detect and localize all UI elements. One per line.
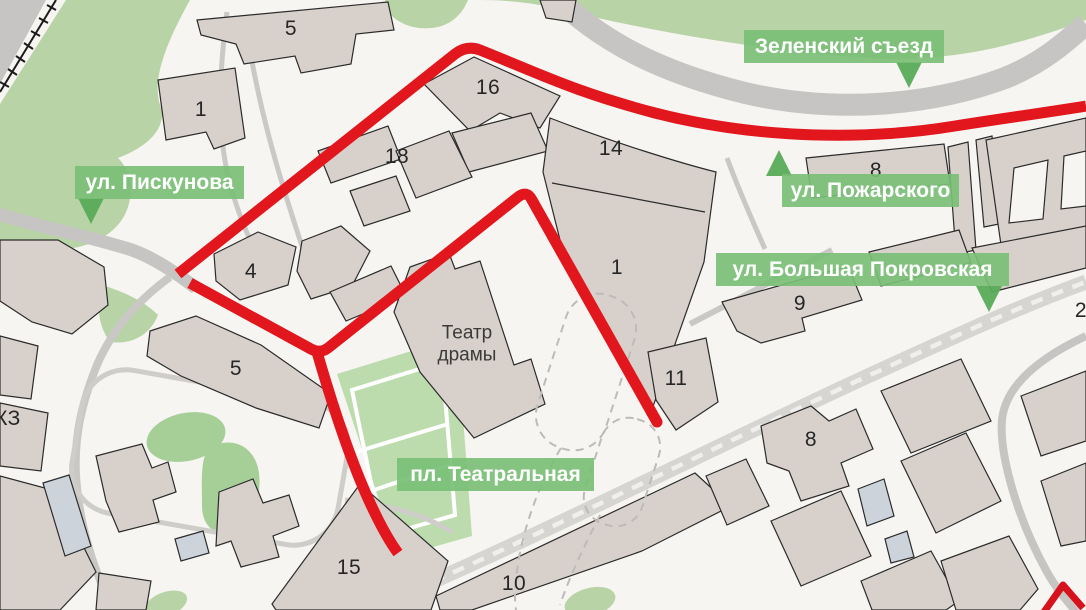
label-pointer-pokrovskaya	[976, 286, 1002, 312]
building-number: 9	[794, 292, 806, 316]
building-number: 18	[385, 145, 409, 169]
label-pointer-zelensky	[896, 62, 922, 88]
building-number: 1	[611, 256, 623, 280]
label-pointer-pozharskogo	[766, 150, 792, 176]
street-label-zelensky-sezd: Зеленский съезд	[744, 30, 944, 63]
building-number: 10	[502, 572, 526, 596]
map-drawing	[0, 0, 1086, 610]
building-number: 8	[805, 428, 817, 452]
street-label-piskunova: ул. Пискунова	[75, 166, 244, 199]
building-number: 14	[599, 137, 623, 161]
partial-label-2: 2	[1075, 299, 1086, 323]
street-label-bolshaya-pokrovskaya: ул. Большая Покровская	[716, 253, 1009, 286]
label-pointer-piskunova	[78, 198, 104, 224]
theater-label-line2: драмы	[438, 345, 497, 367]
building-number: 1	[195, 98, 207, 122]
building-number: 5	[285, 17, 297, 41]
building-number: 4	[245, 260, 257, 284]
building-number: 11	[665, 367, 688, 391]
street-label-teatralnaya-square: пл. Театральная	[397, 458, 594, 491]
building-number: 15	[337, 556, 361, 580]
partial-label-kz: КЗ	[0, 407, 21, 431]
building-number: 16	[476, 76, 500, 100]
map-canvas: 5 1 16 18 14 8 4 1 9 5 11 8 15 10 КЗ 2 Т…	[0, 0, 1086, 610]
building-number: 5	[230, 357, 242, 381]
theater-label-line1: Театр	[438, 323, 497, 345]
street-label-pozharskogo: ул. Пожарского	[782, 174, 959, 207]
theater-label: Театр драмы	[438, 323, 497, 368]
